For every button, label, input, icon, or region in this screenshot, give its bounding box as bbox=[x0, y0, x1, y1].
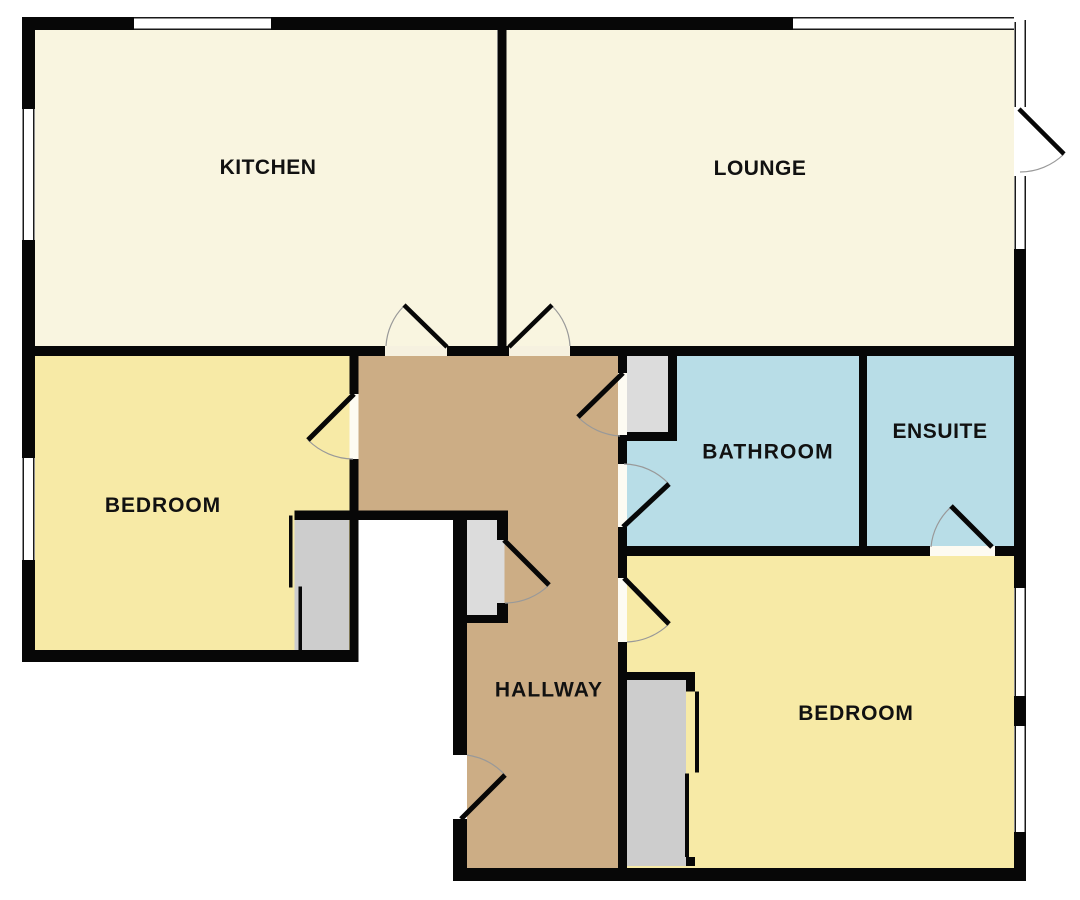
svg-text:LOUNGE: LOUNGE bbox=[714, 157, 807, 180]
svg-text:ENSUITE: ENSUITE bbox=[892, 420, 987, 443]
svg-text:HALLWAY: HALLWAY bbox=[495, 679, 603, 702]
svg-text:KITCHEN: KITCHEN bbox=[220, 156, 317, 179]
svg-text:BEDROOM: BEDROOM bbox=[105, 494, 221, 517]
svg-text:BATHROOM: BATHROOM bbox=[702, 441, 834, 464]
svg-text:BEDROOM: BEDROOM bbox=[798, 702, 913, 725]
